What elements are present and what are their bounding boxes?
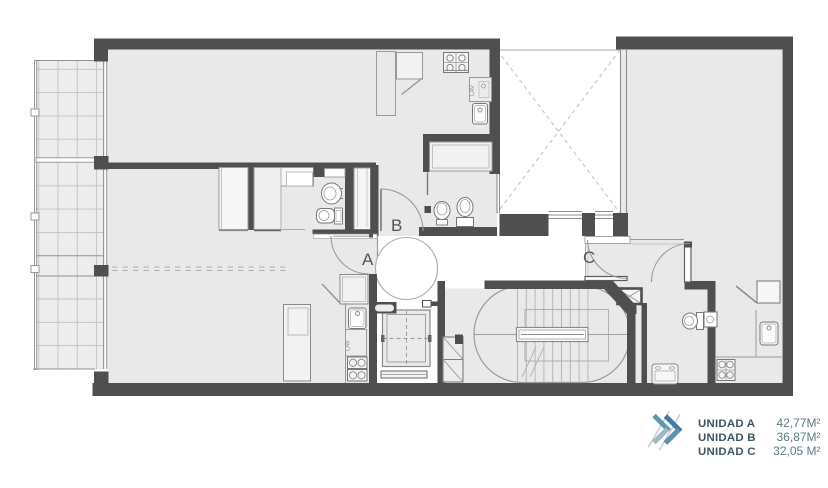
svg-text:42,77M²: 42,77M² [776, 416, 820, 430]
svg-text:UNIDAD A: UNIDAD A [698, 418, 755, 430]
svg-text:UNIDAD C: UNIDAD C [698, 446, 756, 458]
svg-text:B: B [391, 216, 402, 235]
svg-text:LAV: LAV [470, 85, 476, 96]
svg-text:C: C [583, 248, 595, 267]
svg-text:UNIDAD B: UNIDAD B [698, 432, 756, 444]
svg-text:A: A [362, 250, 374, 269]
svg-text:36,87M²: 36,87M² [776, 430, 820, 444]
svg-text:32,05 M²: 32,05 M² [773, 444, 820, 458]
svg-text:LAV: LAV [346, 340, 352, 351]
